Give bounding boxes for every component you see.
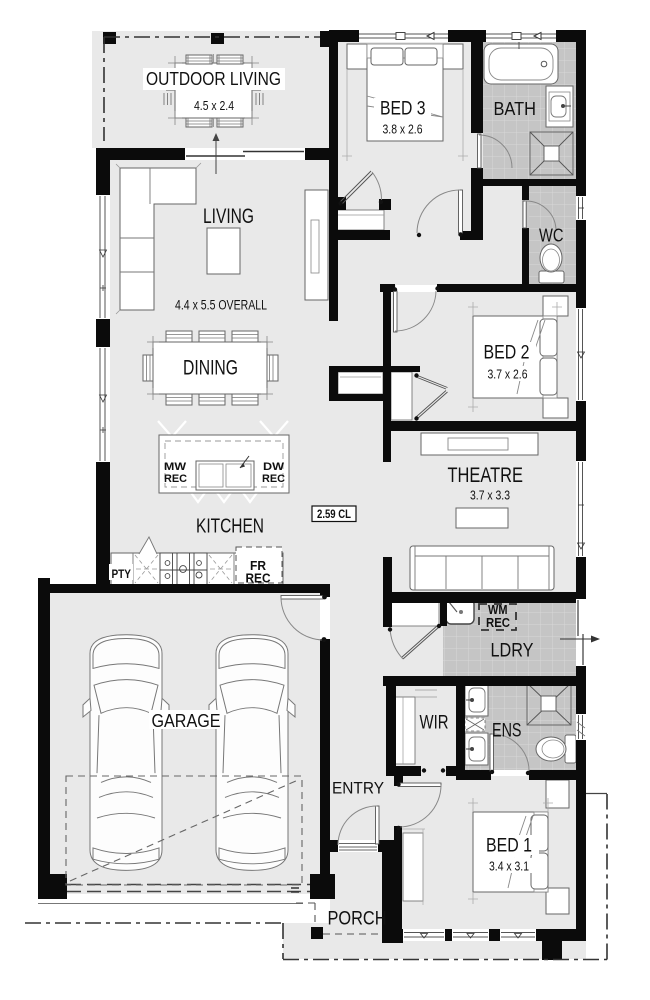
svg-text:4.4 x 5.5 OVERALL: 4.4 x 5.5 OVERALL <box>175 298 267 313</box>
svg-text:BED 1: BED 1 <box>486 836 532 857</box>
svg-text:3.4 x 3.1: 3.4 x 3.1 <box>489 859 529 874</box>
svg-text:THEATRE: THEATRE <box>448 464 524 487</box>
svg-text:LDRY: LDRY <box>491 640 534 662</box>
svg-text:BATH: BATH <box>494 98 537 119</box>
svg-text:REC: REC <box>262 473 285 485</box>
svg-text:WIR: WIR <box>420 712 449 734</box>
svg-text:BED 2: BED 2 <box>484 343 530 364</box>
svg-text:3.8 x 2.6: 3.8 x 2.6 <box>383 122 423 137</box>
svg-text:3.7 x 2.6: 3.7 x 2.6 <box>488 367 528 382</box>
svg-text:4.5 x 2.4: 4.5 x 2.4 <box>194 98 234 113</box>
svg-text:KITCHEN: KITCHEN <box>196 515 264 538</box>
svg-text:LIVING: LIVING <box>203 204 254 228</box>
svg-text:PTY: PTY <box>112 567 132 581</box>
svg-text:PORCH: PORCH <box>328 908 387 930</box>
svg-text:BED 3: BED 3 <box>380 99 426 120</box>
svg-text:DW: DW <box>263 461 285 473</box>
svg-text:ENTRY: ENTRY <box>332 779 384 798</box>
svg-text:GARAGE: GARAGE <box>152 710 221 731</box>
svg-text:MW: MW <box>164 461 187 473</box>
svg-text:2.59 CL: 2.59 CL <box>317 509 351 521</box>
svg-text:REC: REC <box>486 616 510 630</box>
svg-text:ENS: ENS <box>492 720 522 742</box>
svg-text:DINING: DINING <box>183 356 238 380</box>
svg-text:OUTDOOR LIVING: OUTDOOR LIVING <box>146 69 281 89</box>
svg-text:REC: REC <box>246 572 271 586</box>
svg-text:WM: WM <box>488 603 508 617</box>
svg-text:3.7 x 3.3: 3.7 x 3.3 <box>470 488 510 503</box>
svg-text:REC: REC <box>164 473 187 485</box>
svg-text:WC: WC <box>539 226 564 246</box>
